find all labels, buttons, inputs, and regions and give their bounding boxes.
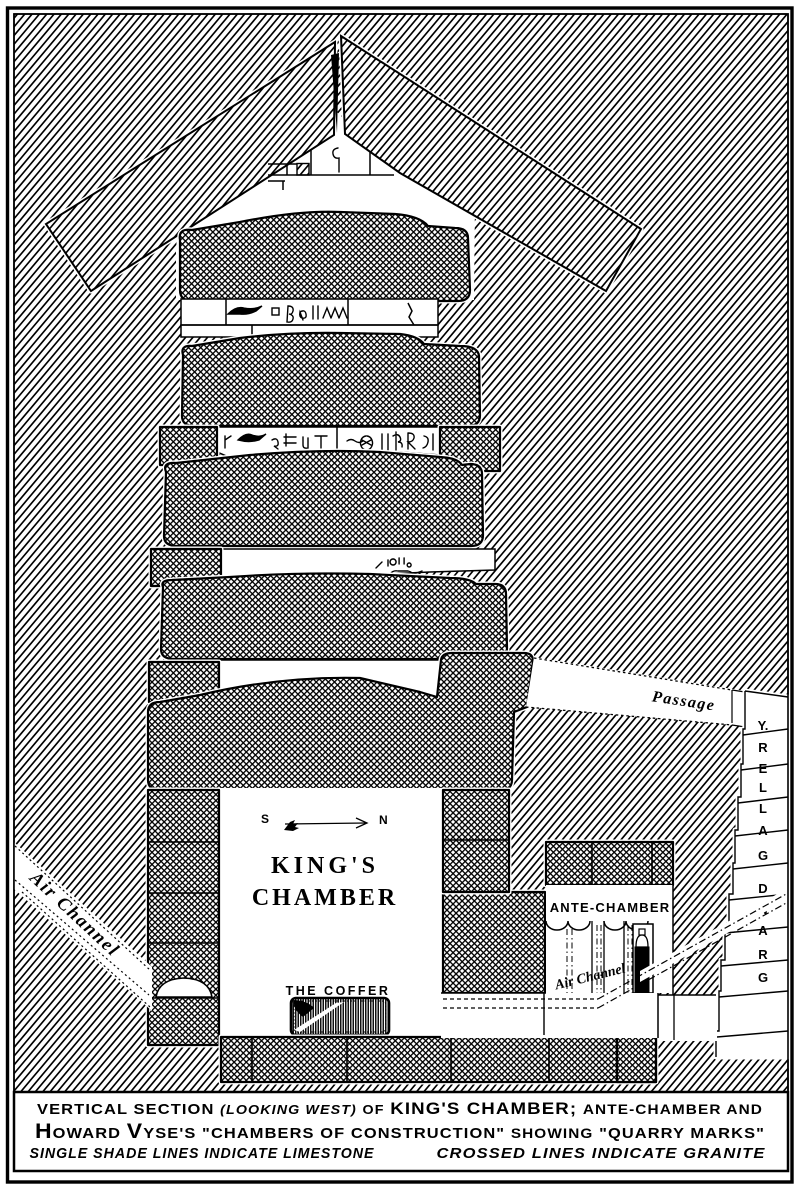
- svg-text:L: L: [759, 780, 767, 795]
- svg-text:L: L: [759, 801, 767, 816]
- svg-text:CROSSED LINES INDICATE GRANITE: CROSSED LINES INDICATE GRANITE: [437, 1146, 766, 1162]
- svg-text:R: R: [758, 947, 768, 962]
- svg-text:ANTE-CHAMBER: ANTE-CHAMBER: [550, 900, 671, 915]
- svg-text:D: D: [758, 881, 767, 896]
- svg-text:G: G: [758, 848, 768, 863]
- svg-text:VERTICAL SECTION (LOOKING WEST: VERTICAL SECTION (LOOKING WEST) OF KING'…: [37, 1099, 763, 1118]
- svg-text:CHAMBER: CHAMBER: [252, 885, 398, 911]
- svg-text:G: G: [758, 970, 768, 985]
- svg-text:THE COFFER: THE COFFER: [286, 984, 391, 998]
- svg-text:A: A: [758, 823, 768, 838]
- svg-text:E: E: [759, 761, 768, 776]
- svg-text:A: A: [758, 923, 768, 938]
- svg-text:SINGLE SHADE LINES INDICATE LI: SINGLE SHADE LINES INDICATE LIMESTONE: [30, 1146, 375, 1162]
- svg-text:KING'S: KING'S: [271, 853, 379, 879]
- svg-text:N: N: [379, 813, 388, 827]
- svg-text:R: R: [758, 740, 768, 755]
- svg-text:Y.: Y.: [758, 718, 769, 733]
- svg-text:S: S: [261, 812, 269, 826]
